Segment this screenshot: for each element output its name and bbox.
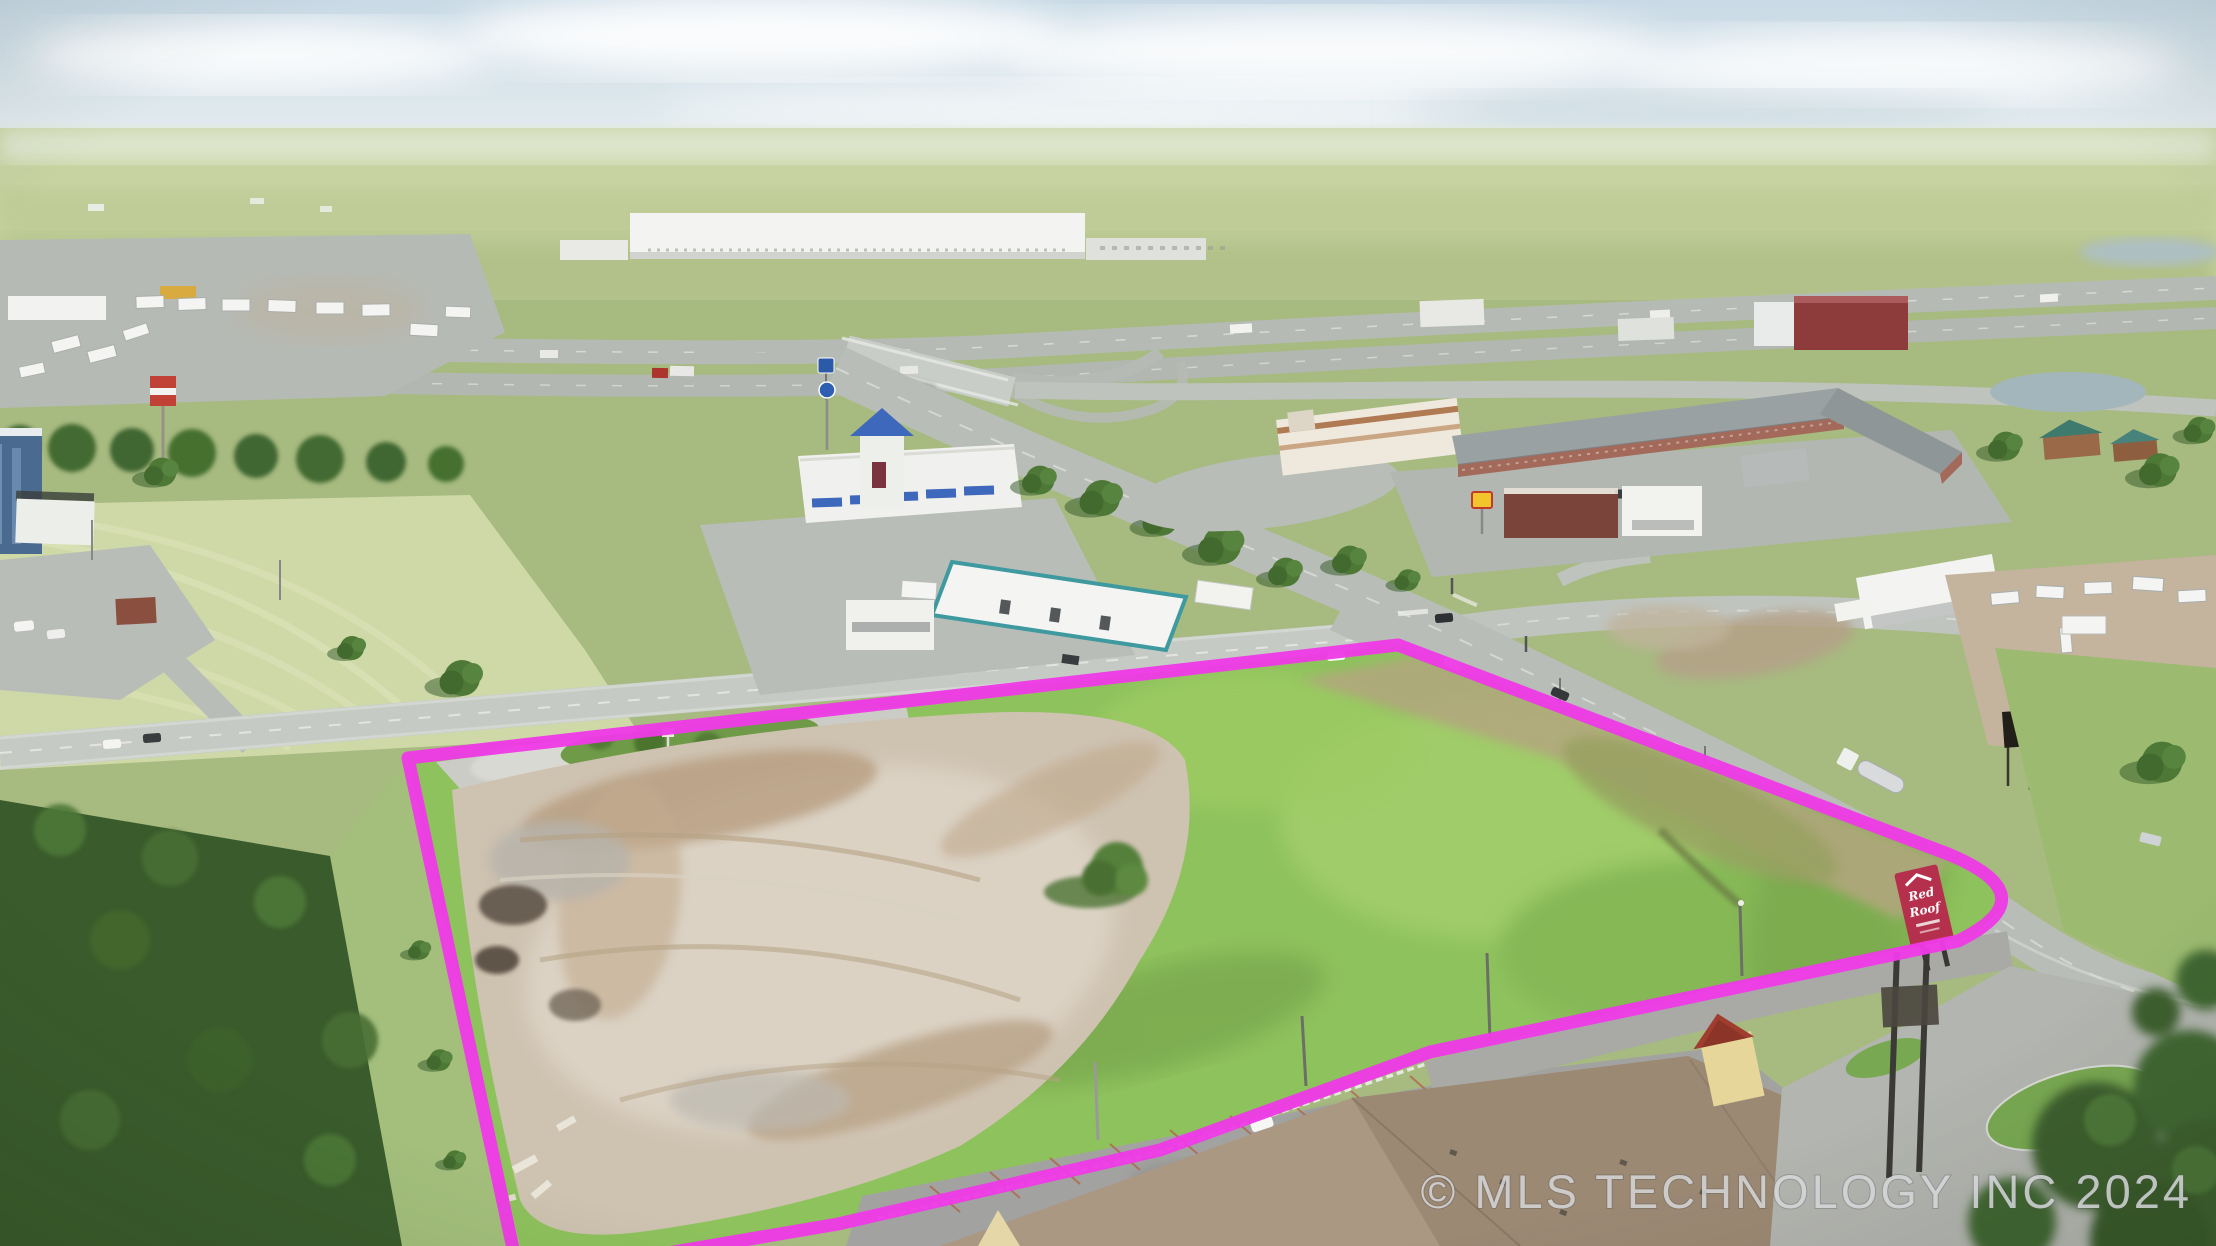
mls-watermark: © MLS TECHNOLOGY INC 2024 bbox=[1421, 1165, 2192, 1218]
aerial-listing-photo: BIG AD bbox=[0, 0, 2216, 1246]
vignette bbox=[0, 0, 2216, 1246]
aerial-photo-canvas: BIG AD bbox=[0, 0, 2216, 1246]
